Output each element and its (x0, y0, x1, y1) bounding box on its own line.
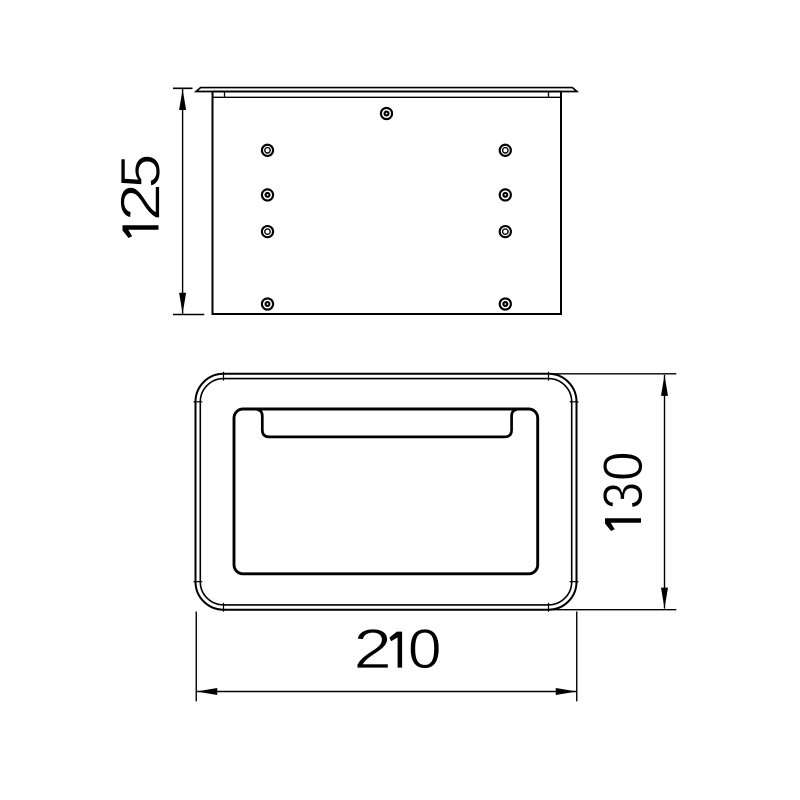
svg-text:3: 3 (592, 482, 655, 509)
svg-text:0: 0 (592, 451, 655, 481)
svg-text:0: 0 (408, 618, 442, 680)
svg-text:5: 5 (109, 154, 172, 189)
svg-text:2: 2 (110, 183, 172, 221)
svg-text:2: 2 (353, 618, 391, 680)
